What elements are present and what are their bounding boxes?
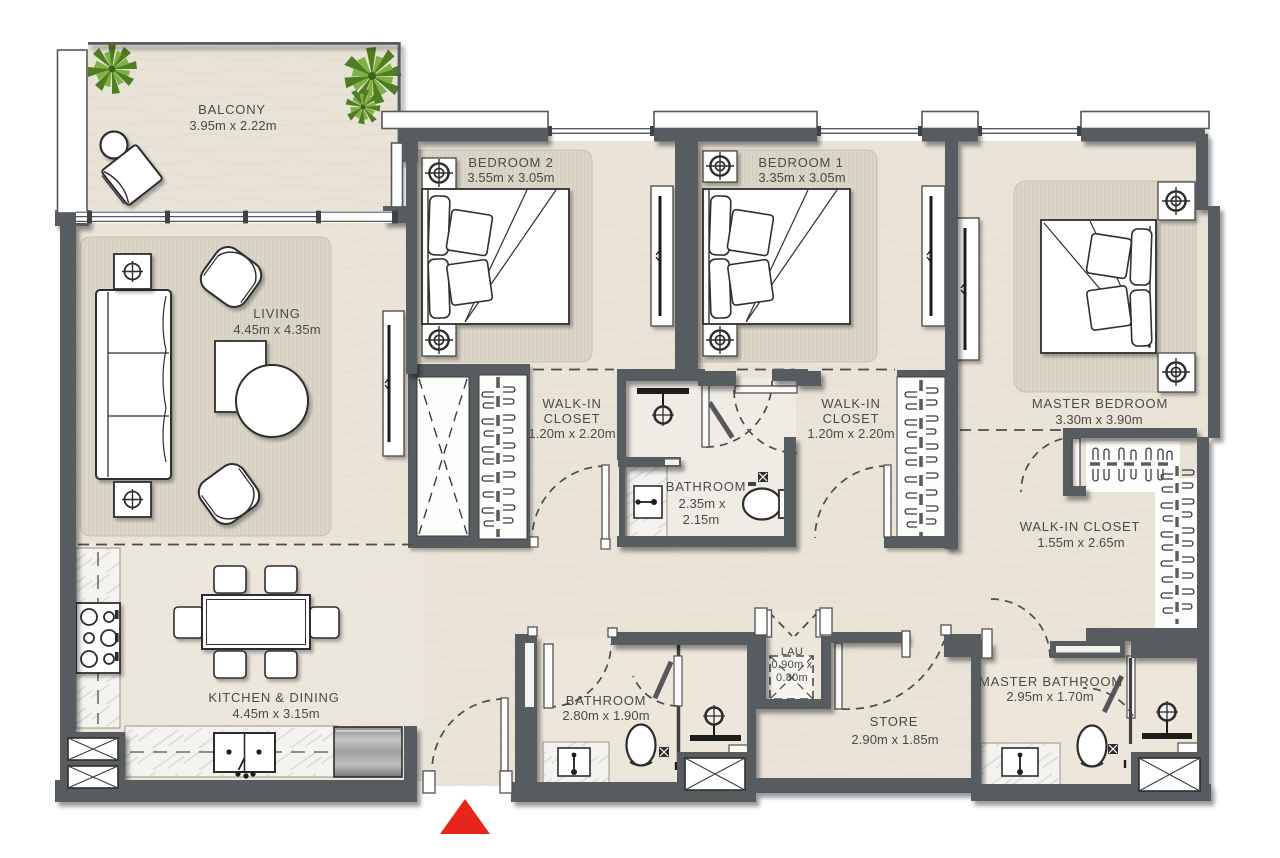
svg-text:MASTER BATHROOM: MASTER BATHROOM xyxy=(979,674,1123,689)
svg-text:3.55m x 3.05m: 3.55m x 3.05m xyxy=(467,170,554,185)
svg-text:2.15m: 2.15m xyxy=(683,512,720,527)
svg-text:3.95m x 2.22m: 3.95m x 2.22m xyxy=(189,118,276,133)
svg-text:LAU: LAU xyxy=(781,646,803,658)
svg-text:3.35m x 3.05m: 3.35m x 3.05m xyxy=(758,170,845,185)
svg-text:0.80m: 0.80m xyxy=(776,672,808,684)
svg-text:BATHROOM: BATHROOM xyxy=(566,693,647,708)
svg-text:MASTER BEDROOM: MASTER BEDROOM xyxy=(1032,396,1168,411)
svg-text:2.90m x 1.85m: 2.90m x 1.85m xyxy=(851,732,938,747)
svg-text:STORE: STORE xyxy=(870,714,919,729)
svg-text:1.20m x 2.20m: 1.20m x 2.20m xyxy=(807,426,894,441)
svg-text:2.95m x 1.70m: 2.95m x 1.70m xyxy=(1006,689,1093,704)
svg-text:2.80m x 1.90m: 2.80m x 1.90m xyxy=(562,708,649,723)
svg-text:1.20m x 2.20m: 1.20m x 2.20m xyxy=(528,426,615,441)
svg-text:2.35m x: 2.35m x xyxy=(679,496,726,511)
svg-text:4.45m x 3.15m: 4.45m x 3.15m xyxy=(232,706,319,721)
svg-text:3.30m x 3.90m: 3.30m x 3.90m xyxy=(1055,412,1142,427)
svg-text:CLOSET: CLOSET xyxy=(544,411,601,426)
svg-text:WALK-IN CLOSET: WALK-IN CLOSET xyxy=(1020,519,1141,534)
svg-text:4.45m x 4.35m: 4.45m x 4.35m xyxy=(233,322,320,337)
svg-text:LIVING: LIVING xyxy=(253,306,300,321)
svg-text:WALK-IN: WALK-IN xyxy=(542,396,601,411)
svg-text:KITCHEN & DINING: KITCHEN & DINING xyxy=(208,690,339,705)
svg-text:0.90m x: 0.90m x xyxy=(771,659,812,671)
svg-text:1.55m x 2.65m: 1.55m x 2.65m xyxy=(1037,535,1124,550)
svg-text:CLOSET: CLOSET xyxy=(823,411,880,426)
svg-text:BEDROOM 1: BEDROOM 1 xyxy=(758,155,843,170)
svg-text:BALCONY: BALCONY xyxy=(198,102,266,117)
svg-text:WALK-IN: WALK-IN xyxy=(821,396,880,411)
svg-text:BATHROOM: BATHROOM xyxy=(666,479,747,494)
svg-text:BEDROOM 2: BEDROOM 2 xyxy=(468,155,553,170)
